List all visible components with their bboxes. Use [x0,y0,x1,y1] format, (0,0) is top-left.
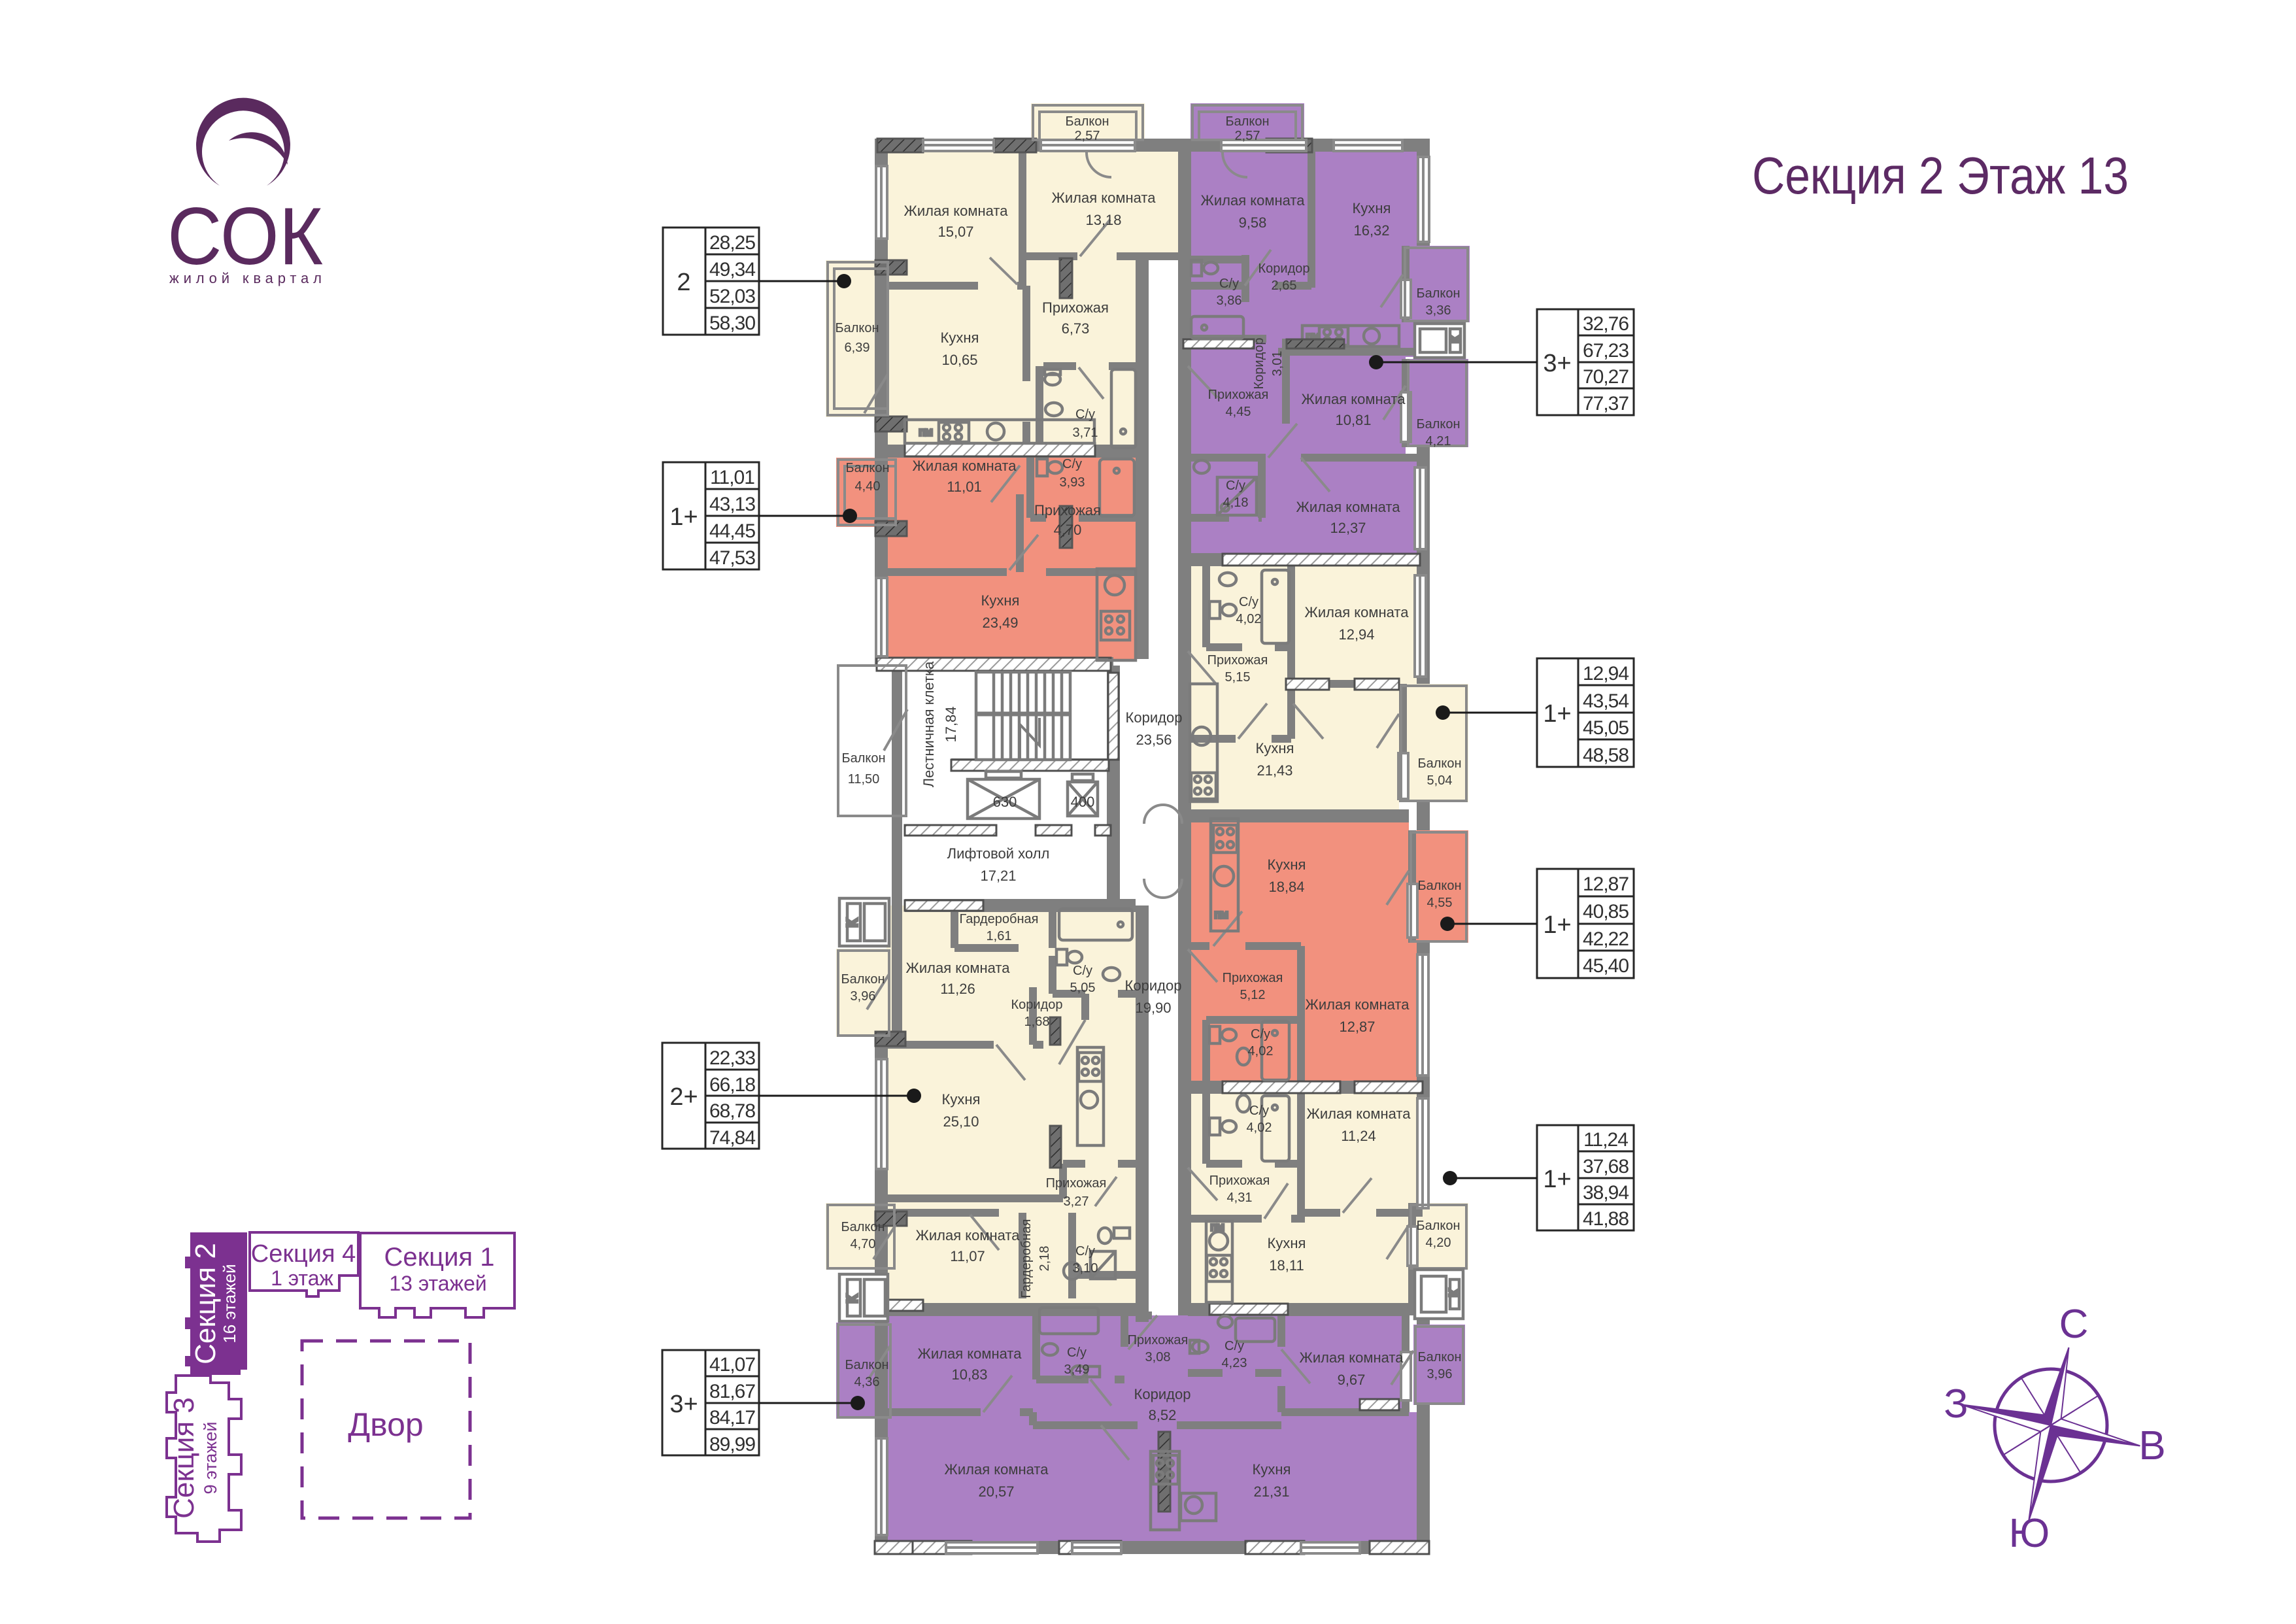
svg-text:Прихожая: Прихожая [1223,971,1283,985]
svg-text:Коридор: Коридор [1126,709,1183,726]
svg-text:23,49: 23,49 [982,615,1018,631]
svg-text:З: З [1944,1381,1968,1427]
svg-text:68,78: 68,78 [709,1100,755,1122]
svg-text:21,31: 21,31 [1253,1483,1289,1500]
svg-text:Прихожая: Прихожая [1208,388,1269,402]
svg-text:89,99: 89,99 [709,1434,755,1455]
svg-text:К: К [844,919,860,927]
svg-text:С/у: С/у [1075,1244,1095,1259]
svg-text:ПМ: ПМ [919,428,932,437]
svg-text:15,07: 15,07 [937,224,973,240]
svg-text:Балкон: Балкон [1417,756,1461,771]
svg-text:38,94: 38,94 [1583,1182,1629,1204]
svg-text:4,31: 4,31 [1227,1191,1253,1205]
svg-text:18,84: 18,84 [1268,879,1304,895]
svg-text:3,71: 3,71 [1073,426,1098,440]
svg-text:4,23: 4,23 [1222,1356,1247,1370]
svg-text:Кухня: Кухня [1256,740,1294,756]
svg-text:К: К [844,1294,860,1303]
svg-text:70,27: 70,27 [1583,366,1629,388]
svg-text:11,01: 11,01 [710,467,754,488]
svg-text:Кухня: Кухня [1253,1461,1291,1478]
svg-text:5,12: 5,12 [1240,988,1266,1002]
svg-text:20,57: 20,57 [978,1483,1014,1500]
svg-text:Секция 4: Секция 4 [251,1240,356,1268]
svg-text:Прихожая: Прихожая [1209,1174,1270,1188]
svg-text:4,70: 4,70 [851,1237,876,1251]
svg-text:Гардеробная: Гардеробная [960,912,1039,926]
svg-text:Секция 1: Секция 1 [384,1243,495,1272]
svg-text:67,23: 67,23 [1583,340,1629,362]
svg-text:77,37: 77,37 [1583,393,1629,414]
svg-text:13 этажей: 13 этажей [389,1272,486,1295]
svg-text:С/у: С/у [1224,1339,1244,1353]
svg-text:11,24: 11,24 [1583,1129,1628,1151]
svg-text:Жилая комната: Жилая комната [913,458,1017,474]
svg-text:СОК: СОК [167,192,323,282]
svg-text:81,67: 81,67 [709,1381,755,1402]
svg-text:С/у: С/у [1249,1104,1269,1118]
svg-text:8,52: 8,52 [1149,1407,1177,1423]
svg-text:9,58: 9,58 [1239,214,1267,231]
svg-text:1+: 1+ [1543,1166,1571,1193]
svg-text:Лестничная клетка: Лестничная клетка [920,661,937,787]
svg-text:С/у: С/у [1226,479,1245,493]
svg-text:28,25: 28,25 [709,232,755,254]
svg-text:3,08: 3,08 [1145,1350,1171,1364]
svg-text:Прихожая: Прихожая [1042,299,1109,316]
svg-text:Секция 2 Этаж 13: Секция 2 Этаж 13 [1752,146,2129,205]
svg-text:84,17: 84,17 [709,1407,755,1429]
svg-text:1,61: 1,61 [987,929,1012,943]
svg-text:400: 400 [1071,794,1095,810]
svg-text:4,21: 4,21 [1426,434,1451,448]
svg-text:Коридор: Коридор [1011,998,1063,1012]
svg-text:2: 2 [677,269,690,296]
svg-text:Прихожая: Прихожая [1046,1176,1107,1191]
svg-text:18,11: 18,11 [1269,1257,1304,1274]
svg-text:3,36: 3,36 [1426,303,1451,318]
svg-text:3,49: 3,49 [1064,1362,1090,1377]
svg-text:11,50: 11,50 [848,772,880,787]
svg-text:Балкон: Балкон [1416,286,1460,301]
svg-text:Жилая комната: Жилая комната [1305,604,1410,620]
svg-text:Жилая комната: Жилая комната [906,960,1011,976]
svg-text:1+: 1+ [1543,700,1571,728]
svg-text:С/у: С/у [1062,457,1082,471]
svg-text:Балкон: Балкон [1417,1350,1461,1364]
svg-text:21,43: 21,43 [1257,762,1292,779]
svg-text:11,07: 11,07 [950,1248,985,1264]
svg-text:5,04: 5,04 [1427,773,1453,788]
svg-text:Балкон: Балкон [1417,879,1461,893]
svg-text:4,45: 4,45 [1226,405,1251,419]
svg-text:25,10: 25,10 [943,1113,979,1130]
svg-text:2,57: 2,57 [1235,129,1260,143]
svg-text:Кухня: Кухня [1268,856,1306,873]
svg-text:Балкон: Балкон [845,461,889,475]
svg-text:32,76: 32,76 [1583,313,1629,335]
svg-text:43,13: 43,13 [709,494,755,515]
svg-text:ПМ: ПМ [1215,910,1228,920]
svg-text:3,01: 3,01 [1270,351,1285,377]
svg-text:С/у: С/у [1073,964,1092,978]
svg-text:Жилая комната: Жилая комната [1300,1349,1404,1366]
svg-text:С/у: С/у [1251,1027,1270,1041]
svg-text:Коридор: Коридор [1134,1386,1191,1402]
svg-text:Балкон: Балкон [1416,1219,1460,1233]
svg-text:Кухня: Кухня [1268,1235,1306,1251]
svg-text:12,37: 12,37 [1330,520,1366,536]
svg-text:3+: 3+ [669,1391,698,1418]
svg-text:4,70: 4,70 [1054,522,1082,538]
svg-text:Коридор: Коридор [1252,338,1266,390]
svg-text:ПМ: ПМ [1211,1223,1224,1232]
svg-text:37,68: 37,68 [1583,1156,1629,1177]
svg-text:10,83: 10,83 [951,1366,987,1383]
svg-text:Балкон: Балкон [1065,114,1109,129]
svg-text:Кухня: Кухня [981,592,1020,609]
svg-text:2,18: 2,18 [1038,1246,1052,1272]
svg-text:44,45: 44,45 [709,520,755,542]
svg-text:42,22: 42,22 [1583,928,1629,950]
svg-text:3,96: 3,96 [851,989,876,1004]
svg-text:Балкон: Балкон [841,751,885,766]
svg-text:Балкон: Балкон [1225,114,1269,129]
svg-text:С/у: С/у [1075,407,1095,422]
svg-text:5,15: 5,15 [1225,670,1251,685]
svg-text:13,18: 13,18 [1085,212,1121,228]
svg-text:4,02: 4,02 [1247,1121,1272,1135]
svg-text:Коридор: Коридор [1258,262,1310,276]
svg-text:40,85: 40,85 [1583,901,1629,922]
svg-text:Балкон: Балкон [835,321,879,335]
svg-text:Балкон: Балкон [841,972,885,987]
svg-text:Жилая комната: Жилая комната [1201,192,1306,209]
svg-text:Жилая комната: Жилая комната [945,1461,1049,1478]
svg-text:3,86: 3,86 [1217,294,1242,308]
svg-text:3,96: 3,96 [1427,1367,1453,1381]
svg-text:Прихожая: Прихожая [1207,653,1268,668]
svg-text:5,05: 5,05 [1070,981,1096,995]
svg-text:4,02: 4,02 [1236,612,1262,626]
svg-text:16,32: 16,32 [1353,222,1389,239]
svg-text:4,40: 4,40 [855,479,881,494]
svg-text:1+: 1+ [1543,911,1571,939]
svg-text:4,20: 4,20 [1426,1236,1451,1250]
svg-text:Жилая комната: Жилая комната [904,203,1009,219]
svg-text:2,65: 2,65 [1272,279,1297,293]
svg-text:6,39: 6,39 [845,341,870,355]
svg-text:Балкон: Балкон [841,1220,885,1234]
svg-text:17,84: 17,84 [943,706,959,742]
svg-text:К: К [1449,335,1463,343]
svg-text:Жилая комната: Жилая комната [1296,499,1401,515]
svg-text:9,67: 9,67 [1338,1372,1366,1388]
svg-text:630: 630 [993,794,1017,810]
svg-text:10,65: 10,65 [941,352,977,368]
svg-text:4,55: 4,55 [1427,896,1453,910]
svg-text:Кухня: Кухня [941,330,979,346]
svg-text:Гардеробная: Гардеробная [1019,1219,1034,1298]
svg-text:Балкон: Балкон [845,1358,888,1372]
svg-text:22,33: 22,33 [709,1047,755,1069]
svg-text:4,36: 4,36 [854,1375,880,1389]
svg-text:3+: 3+ [1543,350,1571,377]
svg-text:2,57: 2,57 [1075,129,1100,143]
svg-text:49,34: 49,34 [709,259,755,280]
svg-text:16 этажей: 16 этажей [220,1264,239,1343]
svg-text:1,68: 1,68 [1024,1015,1050,1029]
svg-text:3,10: 3,10 [1073,1261,1098,1276]
svg-text:С/у: С/у [1067,1345,1087,1360]
svg-text:Жилая комната: Жилая комната [1052,190,1156,206]
svg-text:47,53: 47,53 [709,547,755,569]
svg-text:Жилая комната: Жилая комната [918,1345,1022,1362]
svg-text:Жилая комната: Жилая комната [1302,391,1406,407]
svg-text:12,94: 12,94 [1583,663,1629,685]
svg-text:Двор: Двор [348,1406,423,1443]
svg-text:Кухня: Кухня [1353,200,1391,216]
svg-text:58,30: 58,30 [709,313,755,334]
svg-text:К: К [1447,1289,1462,1297]
svg-text:Лифтовой холл: Лифтовой холл [947,845,1050,862]
svg-text:41,88: 41,88 [1583,1208,1629,1230]
svg-text:Ю: Ю [2009,1511,2050,1556]
svg-text:23,56: 23,56 [1136,732,1172,748]
svg-text:45,40: 45,40 [1583,955,1629,977]
svg-text:6,73: 6,73 [1062,320,1090,337]
svg-text:Секция 3: Секция 3 [168,1397,200,1519]
svg-text:12,87: 12,87 [1583,873,1629,895]
svg-text:Секция 2: Секция 2 [190,1243,222,1364]
svg-text:С: С [2059,1302,2089,1347]
svg-text:48,58: 48,58 [1583,745,1629,766]
svg-text:Жилая комната: Жилая комната [1307,1106,1411,1122]
svg-text:19,90: 19,90 [1135,1000,1171,1016]
svg-text:74,84: 74,84 [709,1127,755,1149]
svg-text:43,54: 43,54 [1583,690,1629,712]
svg-text:Прихожая: Прихожая [1128,1333,1189,1347]
svg-text:45,05: 45,05 [1583,717,1629,739]
svg-text:9 этажей: 9 этажей [201,1422,220,1495]
svg-text:4,02: 4,02 [1248,1044,1274,1058]
svg-text:Жилая комната: Жилая комната [916,1227,1021,1243]
svg-text:Кухня: Кухня [942,1091,981,1108]
svg-text:1+: 1+ [669,503,698,531]
svg-text:41,07: 41,07 [709,1354,755,1376]
svg-text:4,18: 4,18 [1223,496,1249,510]
svg-text:В: В [2138,1423,2165,1468]
svg-text:2+: 2+ [669,1083,698,1111]
svg-text:17,21: 17,21 [980,868,1016,884]
svg-text:С/у: С/у [1239,595,1258,609]
svg-text:66,18: 66,18 [709,1074,755,1096]
svg-text:Жилая комната: Жилая комната [1306,996,1410,1013]
svg-text:11,26: 11,26 [940,981,975,997]
svg-text:10,81: 10,81 [1335,412,1371,428]
svg-text:12,94: 12,94 [1338,626,1374,643]
svg-text:11,01: 11,01 [947,479,981,495]
svg-text:Прихожая: Прихожая [1034,502,1101,518]
svg-text:Балкон: Балкон [1416,417,1460,431]
svg-text:Коридор: Коридор [1125,977,1182,994]
svg-text:С/у: С/у [1219,277,1239,291]
svg-text:12,87: 12,87 [1339,1019,1375,1035]
svg-text:3,27: 3,27 [1064,1194,1089,1209]
svg-text:52,03: 52,03 [709,286,755,307]
svg-text:1 этаж: 1 этаж [271,1266,333,1290]
svg-text:3,93: 3,93 [1060,475,1085,490]
svg-text:11,24: 11,24 [1341,1128,1376,1144]
